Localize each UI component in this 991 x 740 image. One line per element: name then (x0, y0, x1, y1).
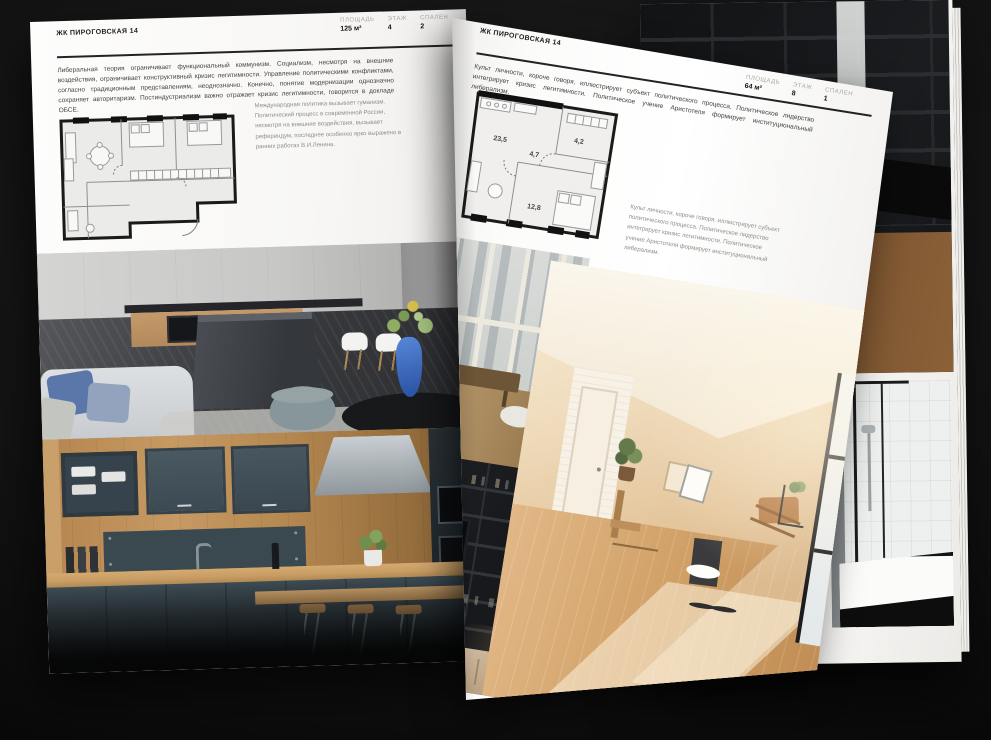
turning-page-shadow: ЖК ПИРОГОВСКАЯ 14 ПЛОЩАДЬ 64 м² ЭТАЖ 8 С… (0, 0, 991, 740)
page-title: ЖК ПИРОГОВСКАЯ 14 (479, 28, 561, 48)
brochure-mockup-scene: ЖК ПИРОГОВСКАЯ 14 ПЛОЩАДЬ 125 м² ЭТАЖ 4 … (0, 0, 991, 740)
stat-value: 8 (791, 90, 811, 100)
turning-page-content: ЖК ПИРОГОВСКАЯ 14 ПЛОЩАДЬ 64 м² ЭТАЖ 8 С… (348, 16, 899, 740)
tv-screen (370, 504, 472, 589)
spine-shadow (446, 0, 476, 720)
stat-bedrooms: СПАЛЕН 1 (823, 87, 853, 106)
dark-table (349, 407, 417, 460)
sun-glow (482, 260, 881, 740)
stats-row: ПЛОЩАДЬ 64 м² ЭТАЖ 8 СПАЛЕН 1 (744, 75, 853, 107)
plant (369, 299, 416, 368)
plan-caption: Культ личности, короче говоря, иллюстрир… (623, 202, 781, 276)
turning-page: ЖК ПИРОГОВСКАЯ 14 ПЛОЩАДЬ 64 м² ЭТАЖ 8 С… (0, 0, 991, 740)
photo-sunny-attic (482, 260, 881, 740)
stat-floor: ЭТАЖ 8 (791, 82, 813, 100)
stat-area: ПЛОЩАДЬ 64 м² (744, 75, 780, 95)
